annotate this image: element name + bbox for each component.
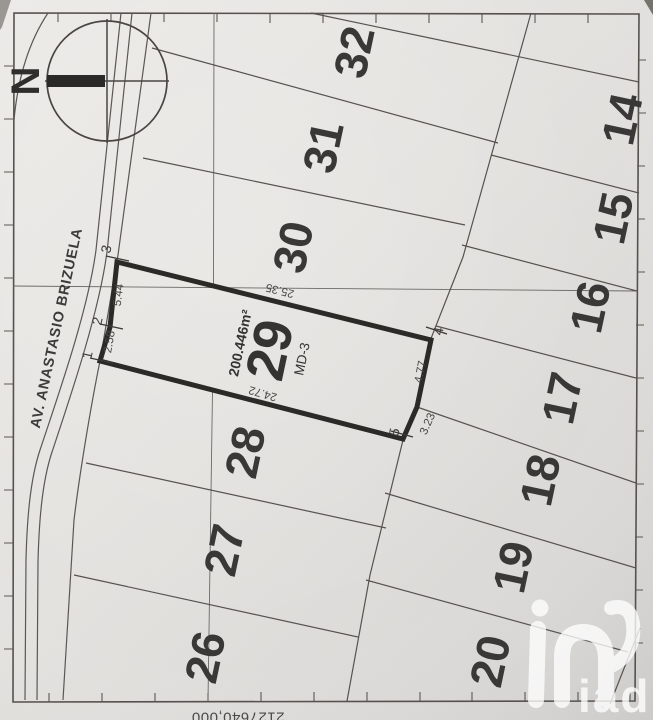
compass-north-bar <box>47 75 105 87</box>
lot-label-30: 30 <box>262 217 324 278</box>
lot-label-28: 28 <box>214 422 276 483</box>
lot-label-16: 16 <box>559 277 621 338</box>
plat-map-scan: N 26 27 28 30 31 32 14 15 16 17 18 19 20… <box>0 0 653 720</box>
lot-label-15: 15 <box>582 188 644 249</box>
lot-label-27: 27 <box>193 520 255 581</box>
lot-label-18: 18 <box>509 450 571 511</box>
lot-label-32: 32 <box>323 22 385 83</box>
lot-label-20: 20 <box>459 631 521 692</box>
iad-logo-text: iad <box>578 670 650 720</box>
compass-north-label: N <box>4 67 48 96</box>
lot-label-31: 31 <box>292 117 354 178</box>
grid-coordinate-label: 2127640,000 <box>191 709 284 720</box>
lot-label-17: 17 <box>531 368 593 429</box>
lot-label-26: 26 <box>174 627 236 688</box>
lot-label-19: 19 <box>482 537 544 598</box>
plat-map-svg: N 26 27 28 30 31 32 14 15 16 17 18 19 20… <box>0 0 653 720</box>
